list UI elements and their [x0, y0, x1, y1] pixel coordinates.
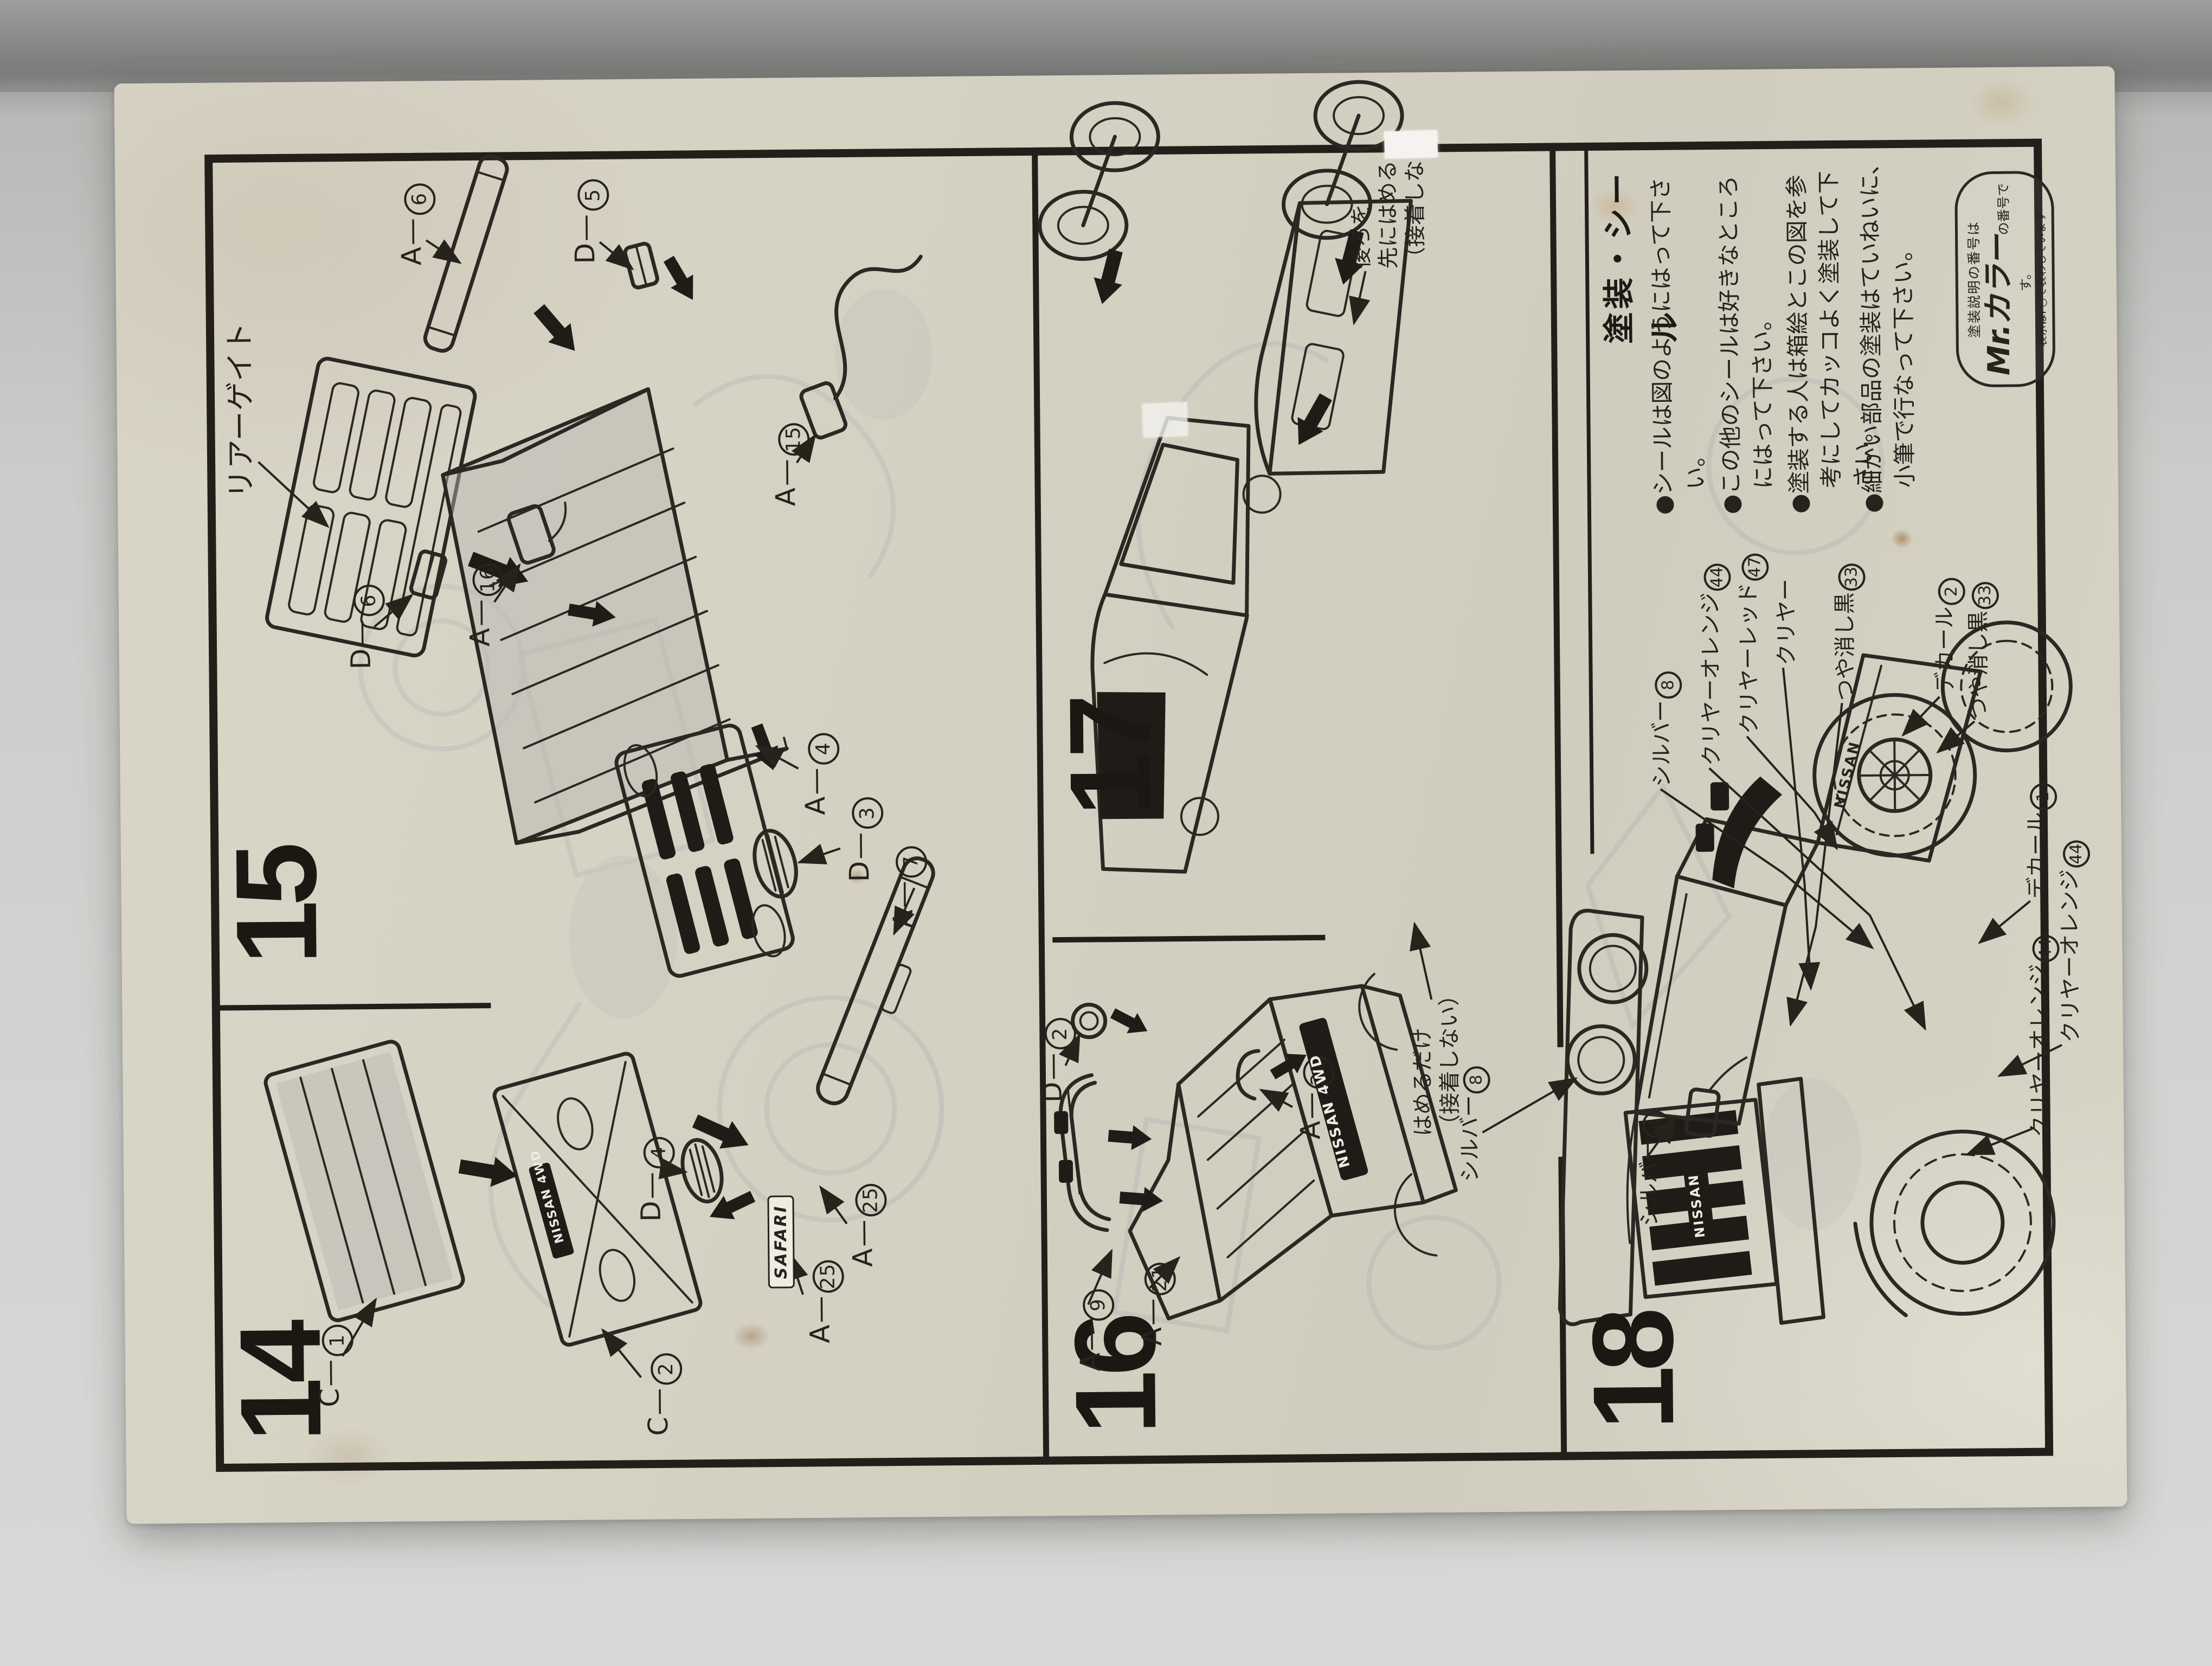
paint-flatblack-spare: つや消し黒33: [1960, 582, 2000, 720]
part-label-a6: A—6: [395, 183, 436, 266]
part-label-a16: A—16: [464, 563, 504, 647]
paint-silver-mirror: シルバー8: [1631, 1111, 1670, 1227]
paintlist-clearorange: クリヤーオレンジ44: [1692, 563, 1732, 766]
step-number-18: 18: [1575, 1312, 1691, 1431]
paintlist-clear: クリヤー: [1769, 579, 1801, 666]
paintlist-silver: シルバー8: [1643, 671, 1683, 787]
white-tape-patch: [1384, 130, 1438, 159]
printed-sheet: .k{stroke:#2b2823;fill:none;stroke-width…: [204, 138, 2054, 1472]
paintlist-clearred: クリヤーレッド47: [1730, 553, 1770, 734]
step-number-17: 17: [1052, 699, 1168, 817]
mr-color-logo: Mr.カラー: [1980, 235, 2017, 375]
paint-silver-headlights: シルバー8: [1451, 1066, 1491, 1182]
part-label-a25: A—25: [803, 1260, 844, 1343]
white-tape-patch-2: [1142, 402, 1188, 438]
mr-color-note: 塗装説明の番号は Mr.カラーの番号です。 表示はP○で表わしています: [1954, 171, 2055, 388]
paint-clearorange-b: クリヤーオレンジ44: [2021, 935, 2061, 1138]
part-label-c2: C—2: [642, 1353, 683, 1436]
safari-badge-part: SAFARI: [767, 1195, 794, 1288]
part-label-a9: A—9: [1074, 1289, 1115, 1372]
caption-rear-gate: リアーゲイト: [215, 322, 260, 498]
notes-bullets: ●シールは図のようにはって下さい。 ●この他のシールは好きなところにはって下さい…: [1644, 155, 1883, 515]
mr-color-small: 表示はP○で表わしています: [2033, 181, 2049, 376]
stain: [1969, 78, 2034, 127]
part-label-a4: A—4: [799, 733, 840, 815]
part-label-a25b: A—25: [846, 1184, 887, 1267]
part-label-d6: D—6: [345, 585, 385, 669]
part-label-d4: D—4: [634, 1137, 675, 1222]
note-bullet-1: ●シールは図のようにはって下さい。: [1644, 156, 1712, 515]
part-label-a7: A—7: [887, 846, 928, 928]
paintlist-flatblack: つや消し黒33: [1827, 563, 1866, 701]
instruction-sheet-paper: .k{stroke:#2b2823;fill:none;stroke-width…: [114, 66, 2127, 1524]
part-label-a15: A—15: [769, 423, 810, 507]
notes-bullet-4: ●細かい部品の塗装はていねいに、小筆で行なって下さい。: [1854, 144, 1925, 513]
part-label-d3: D—3: [843, 797, 884, 882]
part-label-d2: D—2: [1036, 1018, 1077, 1103]
photo-scene: .k{stroke:#2b2823;fill:none;stroke-width…: [0, 0, 2212, 1666]
part-label-d5: D—5: [569, 180, 609, 264]
step-number-15: 15: [218, 847, 335, 965]
note-bullet-4: ●細かい部品の塗装はていねいに、小筆で行なって下さい。: [1854, 144, 1921, 513]
note-bullet-2: ●この他のシールは好きなところにはって下さい。: [1712, 156, 1780, 514]
part-label-c1: C—1: [313, 1324, 353, 1407]
part-label-a21: A—21: [1136, 1263, 1176, 1346]
